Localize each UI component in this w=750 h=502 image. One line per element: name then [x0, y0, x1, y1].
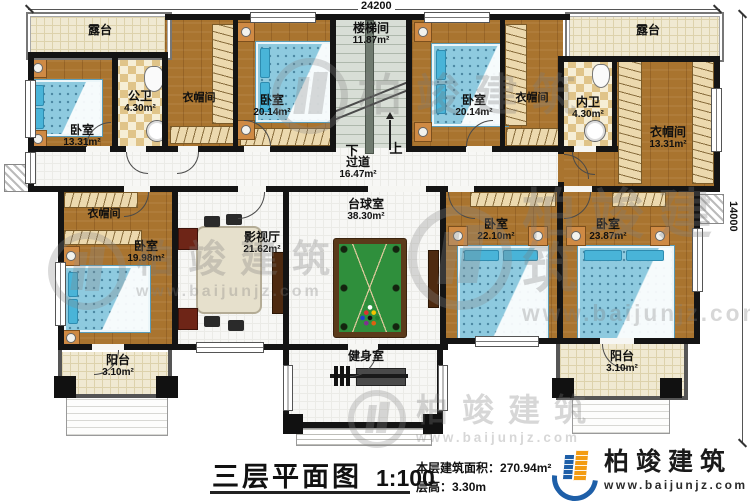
- floor-plan-canvas: 露台 露台 卧室13.31m² 公卫4.30m² 衣帽间 卧室20.14m² 楼…: [0, 0, 750, 502]
- wall: [283, 422, 443, 428]
- nightstand: [448, 226, 468, 246]
- pillow: [436, 84, 446, 114]
- window: [692, 228, 703, 292]
- room-label-hallway: 过道16.47m²: [339, 156, 376, 180]
- room-label-closet-left: 衣帽间: [88, 208, 121, 220]
- wardrobe: [618, 60, 642, 184]
- porch-left: [66, 396, 168, 436]
- room-label-closet-top-left: 衣帽间: [183, 92, 216, 104]
- porch-right: [572, 398, 670, 434]
- barbell-plate: [340, 366, 344, 386]
- billiard-felt: [339, 244, 401, 332]
- room-label-terrace-right: 露台: [636, 24, 660, 37]
- stair-arrow-head: [386, 112, 394, 119]
- drawing-title-group: 三层平面图 1:100: [212, 455, 435, 494]
- pillar: [423, 414, 443, 434]
- wardrobe: [505, 24, 527, 126]
- balcony-right-railing: [684, 344, 688, 400]
- ac-unit-right: [698, 194, 724, 224]
- pillar: [54, 376, 76, 398]
- speaker-cabinet: [178, 228, 198, 250]
- lamp-icon: [655, 231, 665, 241]
- lamp-icon: [33, 63, 43, 73]
- room-label-billiard-room: 台球室38.30m²: [347, 198, 384, 222]
- pillow: [464, 250, 499, 261]
- wall: [500, 20, 505, 152]
- nightstand: [528, 226, 548, 246]
- drawing-info: 本层建筑面积：270.94m² 层高：3.30m: [416, 459, 551, 496]
- speaker-cabinet: [178, 308, 198, 330]
- window: [475, 336, 539, 347]
- lamp-icon: [453, 231, 463, 241]
- bed-sheet: [66, 268, 148, 330]
- armchair: [204, 216, 220, 227]
- window: [25, 80, 36, 138]
- room-label-private-bath: 内卫4.30m²: [572, 96, 604, 120]
- lamp-icon: [418, 27, 428, 37]
- door-opening: [368, 186, 426, 192]
- barbell-plate: [334, 366, 338, 386]
- pillow: [436, 50, 446, 80]
- wall: [612, 56, 617, 152]
- room-label-bedroom-13: 卧室13.31m²: [63, 124, 100, 148]
- wall: [557, 186, 563, 344]
- pillow: [626, 250, 664, 261]
- window: [424, 12, 490, 23]
- sink: [584, 120, 606, 142]
- wall: [330, 14, 336, 152]
- lamp-icon: [241, 27, 251, 37]
- room-label-bedroom-20-left: 卧室20.14m²: [253, 94, 290, 118]
- company-website: www.baijunjz.com: [604, 478, 748, 492]
- window: [55, 262, 66, 326]
- window: [711, 88, 722, 152]
- wall: [165, 14, 570, 20]
- lamp-icon: [533, 231, 543, 241]
- dimension-width: 24200: [358, 0, 395, 12]
- toilet: [592, 64, 610, 88]
- nightstand: [650, 226, 670, 246]
- pillar: [552, 378, 574, 398]
- armchair: [204, 316, 220, 327]
- wall: [440, 186, 446, 344]
- pillar: [156, 376, 178, 398]
- hallway-floor: [28, 148, 563, 188]
- lamp-icon: [418, 127, 428, 137]
- pillow: [68, 272, 78, 297]
- pillow: [68, 299, 78, 324]
- window: [438, 365, 448, 411]
- title-underline: [210, 491, 410, 494]
- lamp-icon: [66, 251, 76, 261]
- wall: [28, 52, 168, 58]
- room-label-bedroom-19: 卧室19.98m²: [127, 240, 164, 264]
- window: [250, 12, 316, 23]
- bed-sheet: [580, 248, 672, 340]
- room-label-bedroom-20-right: 卧室20.14m²: [455, 94, 492, 118]
- window: [196, 342, 264, 353]
- nightstand: [237, 22, 255, 42]
- room-label-public-bath: 公卫4.30m²: [124, 90, 156, 114]
- drawing-title: 三层平面图: [212, 455, 362, 494]
- pillow: [503, 250, 538, 261]
- nightstand: [414, 122, 432, 142]
- wall: [112, 56, 118, 152]
- window: [283, 365, 293, 411]
- wardrobe: [470, 192, 556, 207]
- room-label-stairwell: 楼梯间11.87m²: [353, 22, 390, 46]
- pillow: [260, 48, 270, 78]
- window: [25, 152, 36, 184]
- dimension-line-right: [742, 14, 743, 444]
- pillow: [584, 250, 622, 261]
- room-label-bedroom-23: 卧室23.87m²: [589, 218, 626, 242]
- room-label-balcony-left: 阳台3.10m²: [102, 354, 134, 378]
- company-brand: 柏竣建筑 www.baijunjz.com: [552, 448, 748, 494]
- floor-height-line: 层高：3.30m: [416, 478, 551, 497]
- bed-sheet: [460, 248, 546, 338]
- lamp-icon: [571, 231, 581, 241]
- room-label-closet-top-right: 衣帽间: [516, 92, 549, 104]
- nightstand: [566, 226, 586, 246]
- company-logo-icon: [552, 448, 596, 494]
- wardrobe: [506, 128, 560, 146]
- nightstand: [414, 22, 432, 42]
- room-label-closet-right: 衣帽间13.31m²: [649, 126, 686, 150]
- lamp-icon: [66, 333, 76, 343]
- cue-rack: [428, 250, 439, 308]
- pillar: [660, 378, 682, 398]
- gym-entry-steps: [296, 428, 432, 446]
- wall: [563, 56, 720, 62]
- room-label-gym: 健身室: [348, 350, 384, 363]
- billiard-table: [333, 238, 407, 338]
- stair-down-label: 下: [345, 140, 358, 159]
- stair-up-label: 上: [389, 138, 402, 157]
- wall: [162, 56, 168, 152]
- dimension-height: 14000: [727, 198, 739, 235]
- wall: [406, 14, 412, 152]
- pillar: [283, 414, 303, 434]
- wardrobe: [612, 192, 666, 207]
- wardrobe: [170, 126, 234, 144]
- room-label-balcony-right: 阳台3.10m²: [606, 350, 638, 374]
- room-label-media-room: 影视厅21.62m²: [243, 231, 280, 255]
- armchair: [228, 320, 244, 331]
- room-label-terrace-left: 露台: [88, 24, 112, 37]
- floor-area-line: 本层建筑面积：270.94m²: [416, 459, 551, 478]
- wall: [172, 186, 178, 348]
- room-label-bedroom-22: 卧室22.10m²: [477, 218, 514, 242]
- wall: [233, 20, 238, 152]
- wall: [283, 186, 289, 348]
- company-name: 柏竣建筑: [604, 450, 748, 475]
